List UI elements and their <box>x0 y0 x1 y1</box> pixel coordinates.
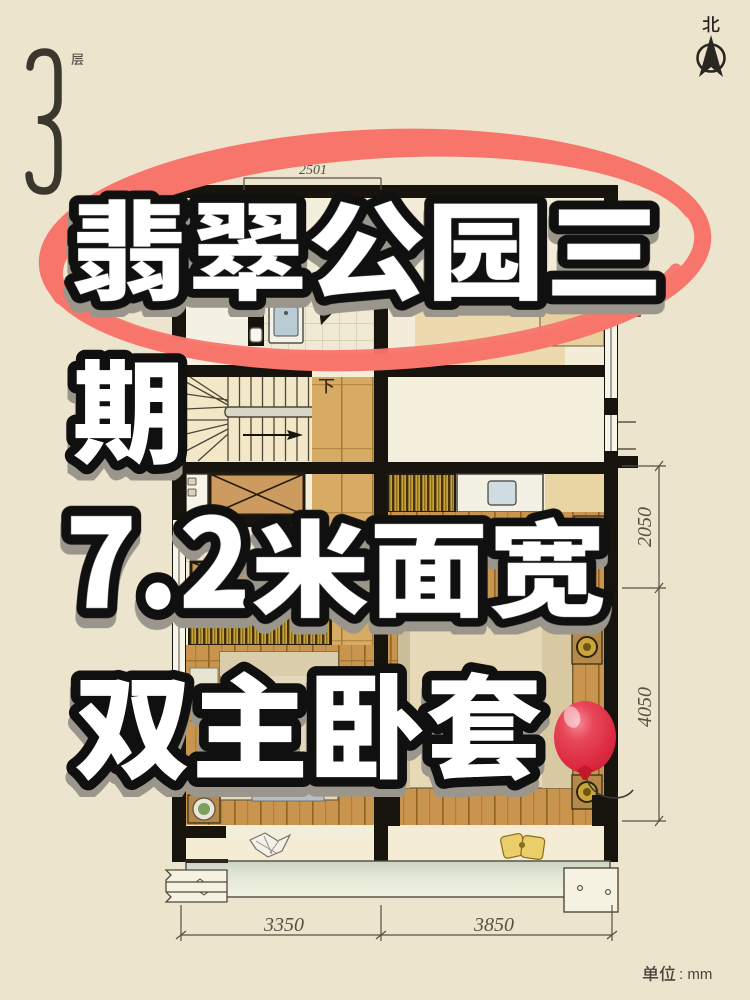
svg-text:: mm: : mm <box>679 966 712 983</box>
svg-text:3850: 3850 <box>473 914 514 936</box>
svg-text:4050: 4050 <box>634 687 656 727</box>
svg-text:3350: 3350 <box>263 914 304 936</box>
svg-text:2050: 2050 <box>634 507 656 547</box>
